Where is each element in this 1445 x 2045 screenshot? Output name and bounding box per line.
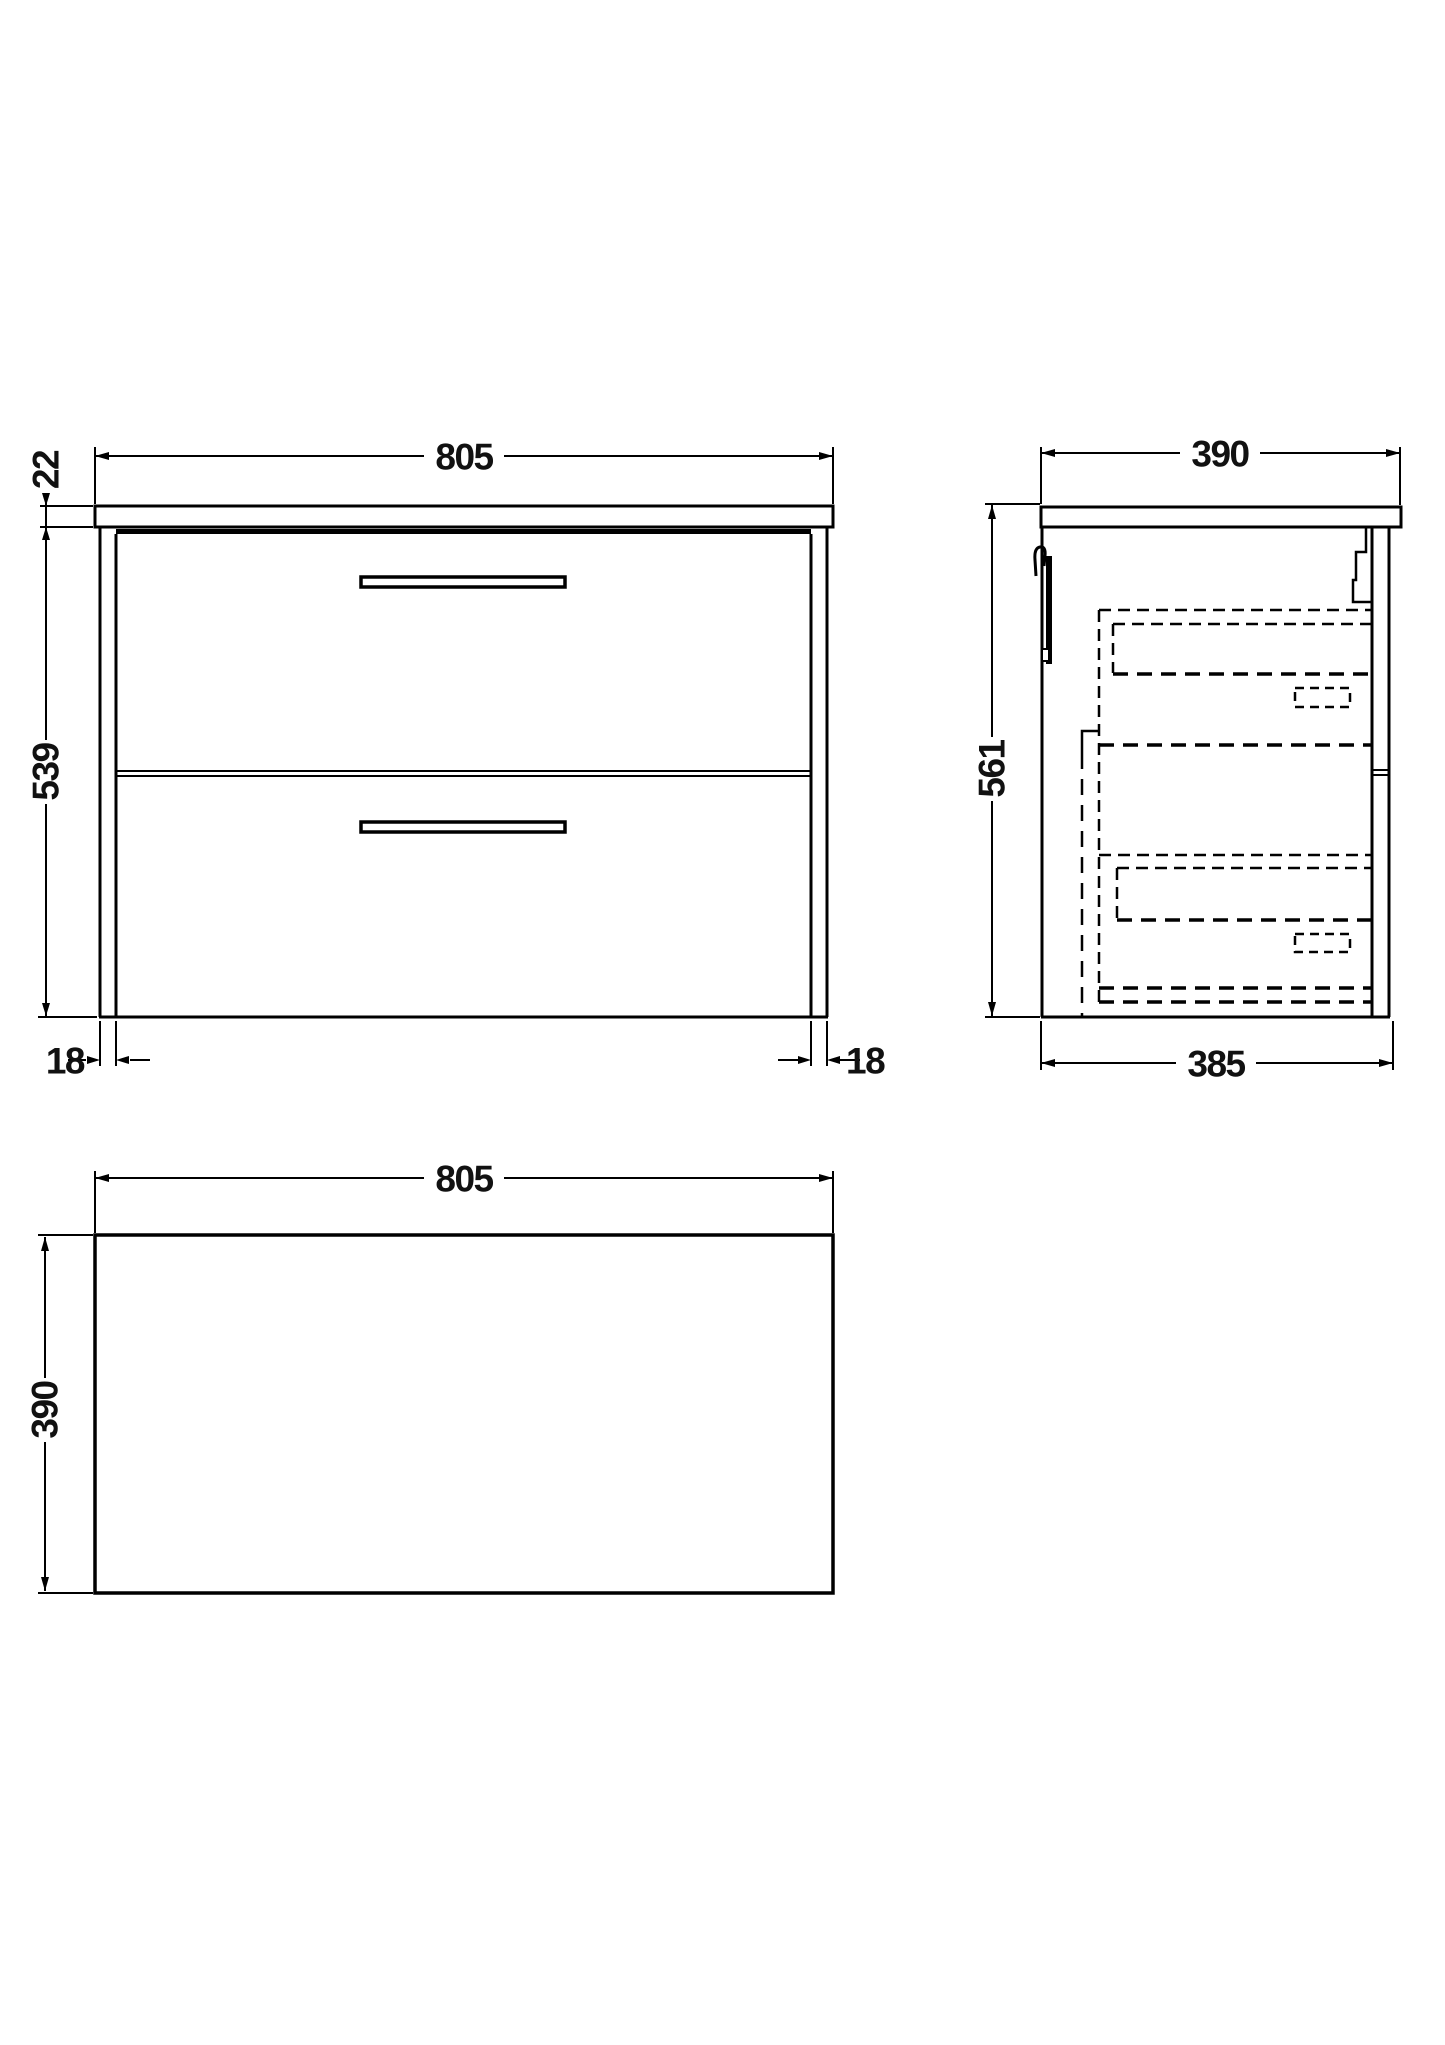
dim-arrow [798,1056,811,1064]
dim-arrow [1041,449,1055,457]
wall-bracket-foot-icon [1042,649,1049,661]
dim-arrow [42,1003,50,1016]
front-drawer-divider [116,771,811,776]
dim-arrow [42,527,50,540]
side-view: 390 561 385 [972,434,1402,1085]
dim-arrow [116,1056,129,1064]
dim-arrow [42,493,50,506]
front-cabinet-height-dimension: 539 [26,742,67,800]
side-drawer-front-gap [1372,770,1389,775]
dim-arrow [87,1056,100,1064]
side-cabinet-depth-dimension: 385 [1187,1044,1245,1085]
side-overall-depth-dimension: 390 [1191,434,1249,475]
front-bottom-drawer-handle [361,822,565,832]
side-overall-height-dimension: 561 [972,739,1013,797]
front-worktop-thickness-dimension: 22 [26,450,67,489]
plan-view: 805 390 [25,1159,834,1594]
front-right-panel-dimension: 18 [846,1041,885,1082]
side-hidden-drawer-runner-top [1295,688,1350,707]
front-left-panel-dimension: 18 [46,1041,85,1082]
side-dimension-lines [985,447,1400,1070]
front-top-drawer-handle [361,577,565,587]
wall-bracket-hook-icon [1035,547,1045,576]
side-worktop [1041,507,1401,527]
side-back-rail-step [1082,731,1100,753]
dim-arrow [827,1056,840,1064]
dim-arrow [1041,1059,1055,1067]
dim-arrow [41,1577,49,1591]
dim-arrow [988,1002,996,1016]
plan-width-dimension: 805 [435,1159,493,1200]
dim-arrow [1386,449,1400,457]
front-dimension-lines [38,447,860,1066]
dim-arrow [1379,1059,1393,1067]
side-hidden-drawer-runner-bottom [1295,934,1350,952]
dim-arrow [988,505,996,519]
side-front-rail-notch [1353,528,1371,602]
drawing-sheet: 805 22 539 18 18 [0,0,1445,2045]
front-worktop [95,506,833,527]
side-hidden-drawer-outlines [1099,610,1371,1002]
plan-depth-dimension: 390 [25,1380,66,1438]
dim-arrow [95,1174,109,1182]
front-view: 805 22 539 18 18 [26,437,886,1082]
side-carcass-outline [1041,527,1390,1017]
front-width-dimension: 805 [435,437,493,478]
dim-arrow [95,452,109,460]
technical-drawing-canvas: 805 22 539 18 18 [0,0,1445,2045]
dim-arrow [41,1237,49,1251]
plan-worktop-outline [95,1235,833,1593]
dim-arrow [819,452,833,460]
dim-arrow [819,1174,833,1182]
